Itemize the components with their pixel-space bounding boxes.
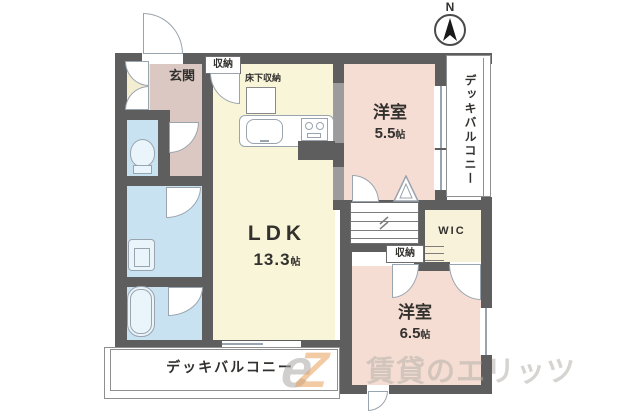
washing-machine-pan bbox=[128, 239, 155, 271]
window-line bbox=[440, 86, 442, 148]
bedroom-upper-label: 洋室 5.5帖 bbox=[352, 103, 428, 149]
compass bbox=[434, 14, 466, 46]
bathtub bbox=[127, 286, 155, 337]
underfloor-storage-label: 床下収納 bbox=[238, 73, 288, 85]
burner-icon bbox=[316, 122, 324, 130]
floor-plan: デッキバルコニー デッキバルコニー 床下収納 収納 収納 bbox=[0, 0, 640, 416]
balcony-door bbox=[368, 391, 388, 411]
window-line bbox=[485, 308, 487, 355]
underfloor-storage-hatch bbox=[246, 87, 276, 114]
bedroom-upper-size: 5.5 bbox=[375, 125, 396, 142]
wall-bedroom-lower-bottom bbox=[340, 385, 492, 394]
opening-ldk-bedroom-1 bbox=[333, 83, 344, 143]
wall-wash-bath bbox=[115, 277, 205, 287]
wall-left bbox=[115, 53, 127, 352]
bedroom-closet-label: 収納 bbox=[387, 246, 423, 261]
window-line bbox=[440, 150, 442, 190]
opening-ldk-bedroom-2 bbox=[333, 167, 344, 200]
bedroom-upper-name: 洋室 bbox=[373, 103, 407, 122]
ldk-unit: 帖 bbox=[291, 257, 301, 268]
stepped-closet bbox=[350, 202, 419, 244]
toilet-tank bbox=[133, 165, 152, 174]
bedroom-lower-size: 6.5 bbox=[400, 325, 421, 342]
wall-entrance-bottom bbox=[115, 176, 213, 186]
bedroom-closet-label-box: 収納 bbox=[386, 245, 424, 263]
shelf-line bbox=[351, 238, 418, 239]
hall-closet-label: 収納 bbox=[206, 57, 240, 72]
stove bbox=[301, 118, 328, 141]
ldk-name: LDK bbox=[248, 222, 306, 245]
wic-shelf-line bbox=[425, 260, 444, 261]
entrance-label: 玄関 bbox=[158, 68, 206, 86]
grill-icon bbox=[307, 133, 321, 138]
burner-icon bbox=[305, 122, 313, 130]
compass-n-label: N bbox=[441, 0, 459, 13]
window-bedroom-lower bbox=[480, 308, 493, 355]
wic-shelf-line bbox=[425, 246, 444, 247]
sink-tap bbox=[260, 140, 269, 142]
balcony-railing-line bbox=[483, 58, 484, 196]
ldk-size: 13.3 bbox=[253, 250, 290, 269]
washing-machine bbox=[134, 248, 150, 267]
bathtub-inner bbox=[130, 289, 152, 334]
deck-balcony-right-label: デッキバルコニー bbox=[451, 66, 477, 194]
bedroom-lower-unit: 帖 bbox=[420, 330, 430, 341]
window-line bbox=[222, 343, 263, 345]
wic-label: WIC bbox=[426, 225, 478, 241]
bedroom-lower-name: 洋室 bbox=[398, 303, 432, 322]
wic-shelf-line bbox=[425, 253, 444, 254]
wall-right bbox=[481, 197, 492, 394]
closet-triangle-icon bbox=[393, 175, 419, 202]
bedroom-lower-label: 洋室 6.5帖 bbox=[377, 303, 453, 351]
wall-entrance-right bbox=[202, 53, 213, 340]
compass-needle-icon bbox=[436, 16, 464, 44]
counter-end-block bbox=[298, 141, 335, 160]
bedroom-upper-unit: 帖 bbox=[395, 130, 405, 141]
deck-balcony-bottom-label: デッキバルコニー bbox=[140, 359, 320, 377]
entrance-door bbox=[143, 13, 183, 54]
ldk-label: LDK 13.3帖 bbox=[233, 222, 321, 274]
break-mark-icon bbox=[378, 212, 390, 234]
toilet bbox=[130, 139, 155, 167]
hall-closet-label-box: 収納 bbox=[205, 56, 241, 74]
